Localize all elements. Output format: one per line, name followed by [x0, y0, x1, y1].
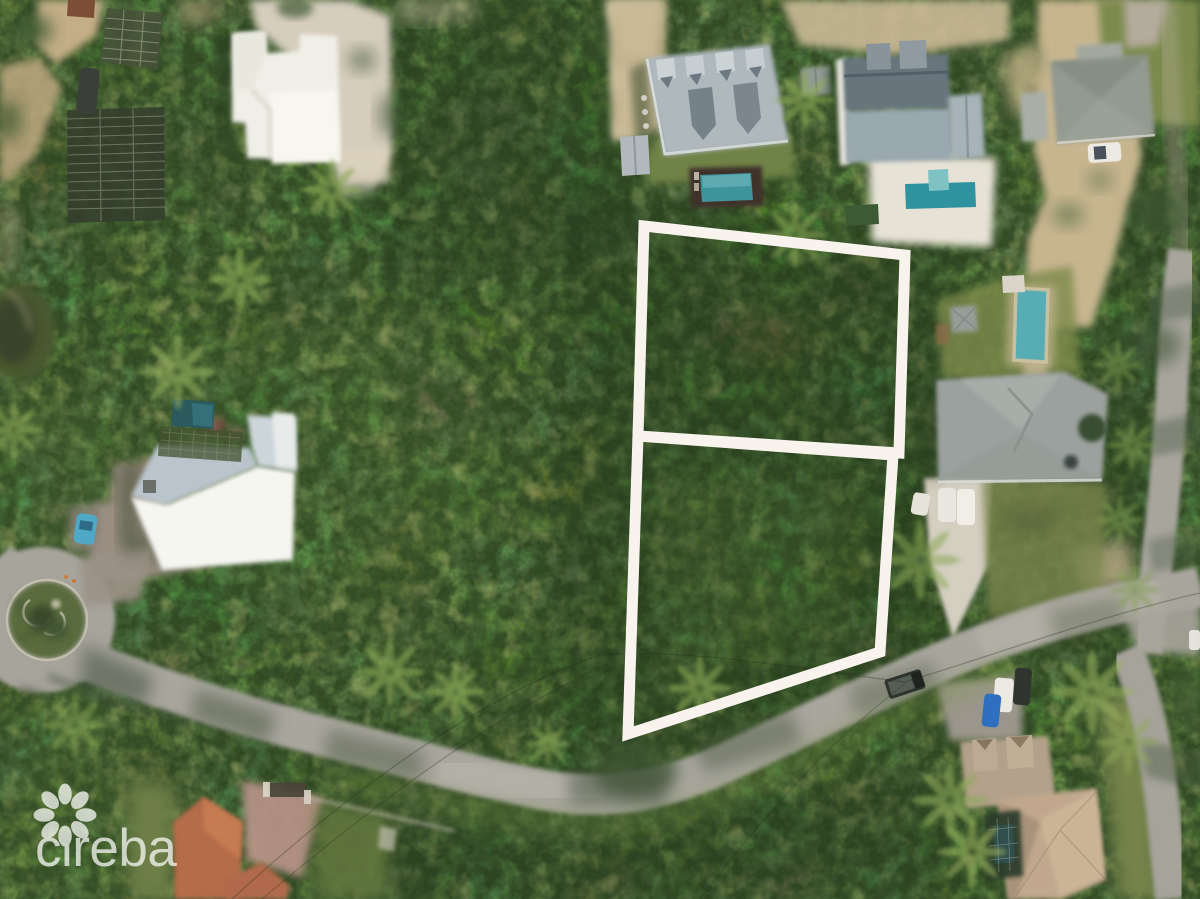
svg-text:cireba: cireba	[35, 819, 177, 878]
